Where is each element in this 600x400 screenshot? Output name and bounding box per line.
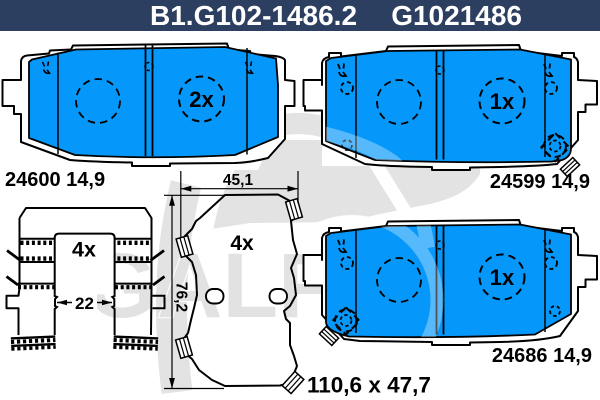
svg-text:76,2: 76,2	[173, 282, 190, 312]
svg-text:24686 14,9: 24686 14,9	[492, 345, 592, 367]
svg-text:24599 14,9: 24599 14,9	[490, 171, 590, 193]
svg-text:1x: 1x	[490, 265, 515, 290]
svg-text:45,1: 45,1	[223, 172, 254, 189]
svg-text:4x: 4x	[230, 232, 254, 255]
svg-text:24600 14,9: 24600 14,9	[5, 169, 105, 191]
svg-text:2x: 2x	[189, 87, 214, 112]
svg-text:G1021486: G1021486	[391, 0, 522, 31]
svg-text:22: 22	[75, 294, 94, 313]
svg-text:1x: 1x	[490, 89, 515, 114]
svg-text:110,6 x 47,7: 110,6 x 47,7	[307, 373, 431, 398]
svg-text:4x: 4x	[72, 238, 96, 262]
svg-text:B1.G102-1486.2: B1.G102-1486.2	[150, 0, 357, 31]
